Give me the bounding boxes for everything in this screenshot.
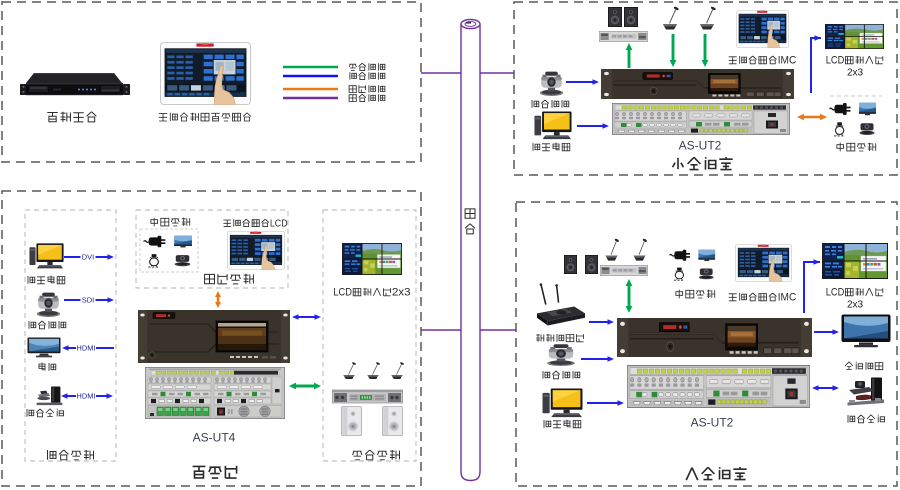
- svg-text:HDMI: HDMI: [76, 392, 95, 401]
- svg-text:LCD: LCD: [270, 219, 288, 230]
- svg-text:HDMI: HDMI: [76, 344, 95, 353]
- svg-text:2x3: 2x3: [847, 300, 864, 311]
- svg-text:AS-UT4: AS-UT4: [193, 430, 236, 444]
- svg-text:DVI: DVI: [82, 253, 95, 262]
- svg-text:LCD: LCD: [826, 287, 845, 299]
- svg-text:2x3: 2x3: [392, 287, 411, 299]
- svg-text:IMC: IMC: [778, 55, 797, 67]
- svg-text:AS-UT2: AS-UT2: [691, 415, 734, 429]
- svg-text:2x3: 2x3: [847, 68, 864, 79]
- svg-text:SDI: SDI: [82, 296, 95, 305]
- svg-text:AS-UT2: AS-UT2: [679, 138, 722, 152]
- svg-text:IMC: IMC: [778, 292, 797, 304]
- svg-text:LCD: LCD: [333, 287, 352, 299]
- svg-text:LCD: LCD: [826, 55, 845, 67]
